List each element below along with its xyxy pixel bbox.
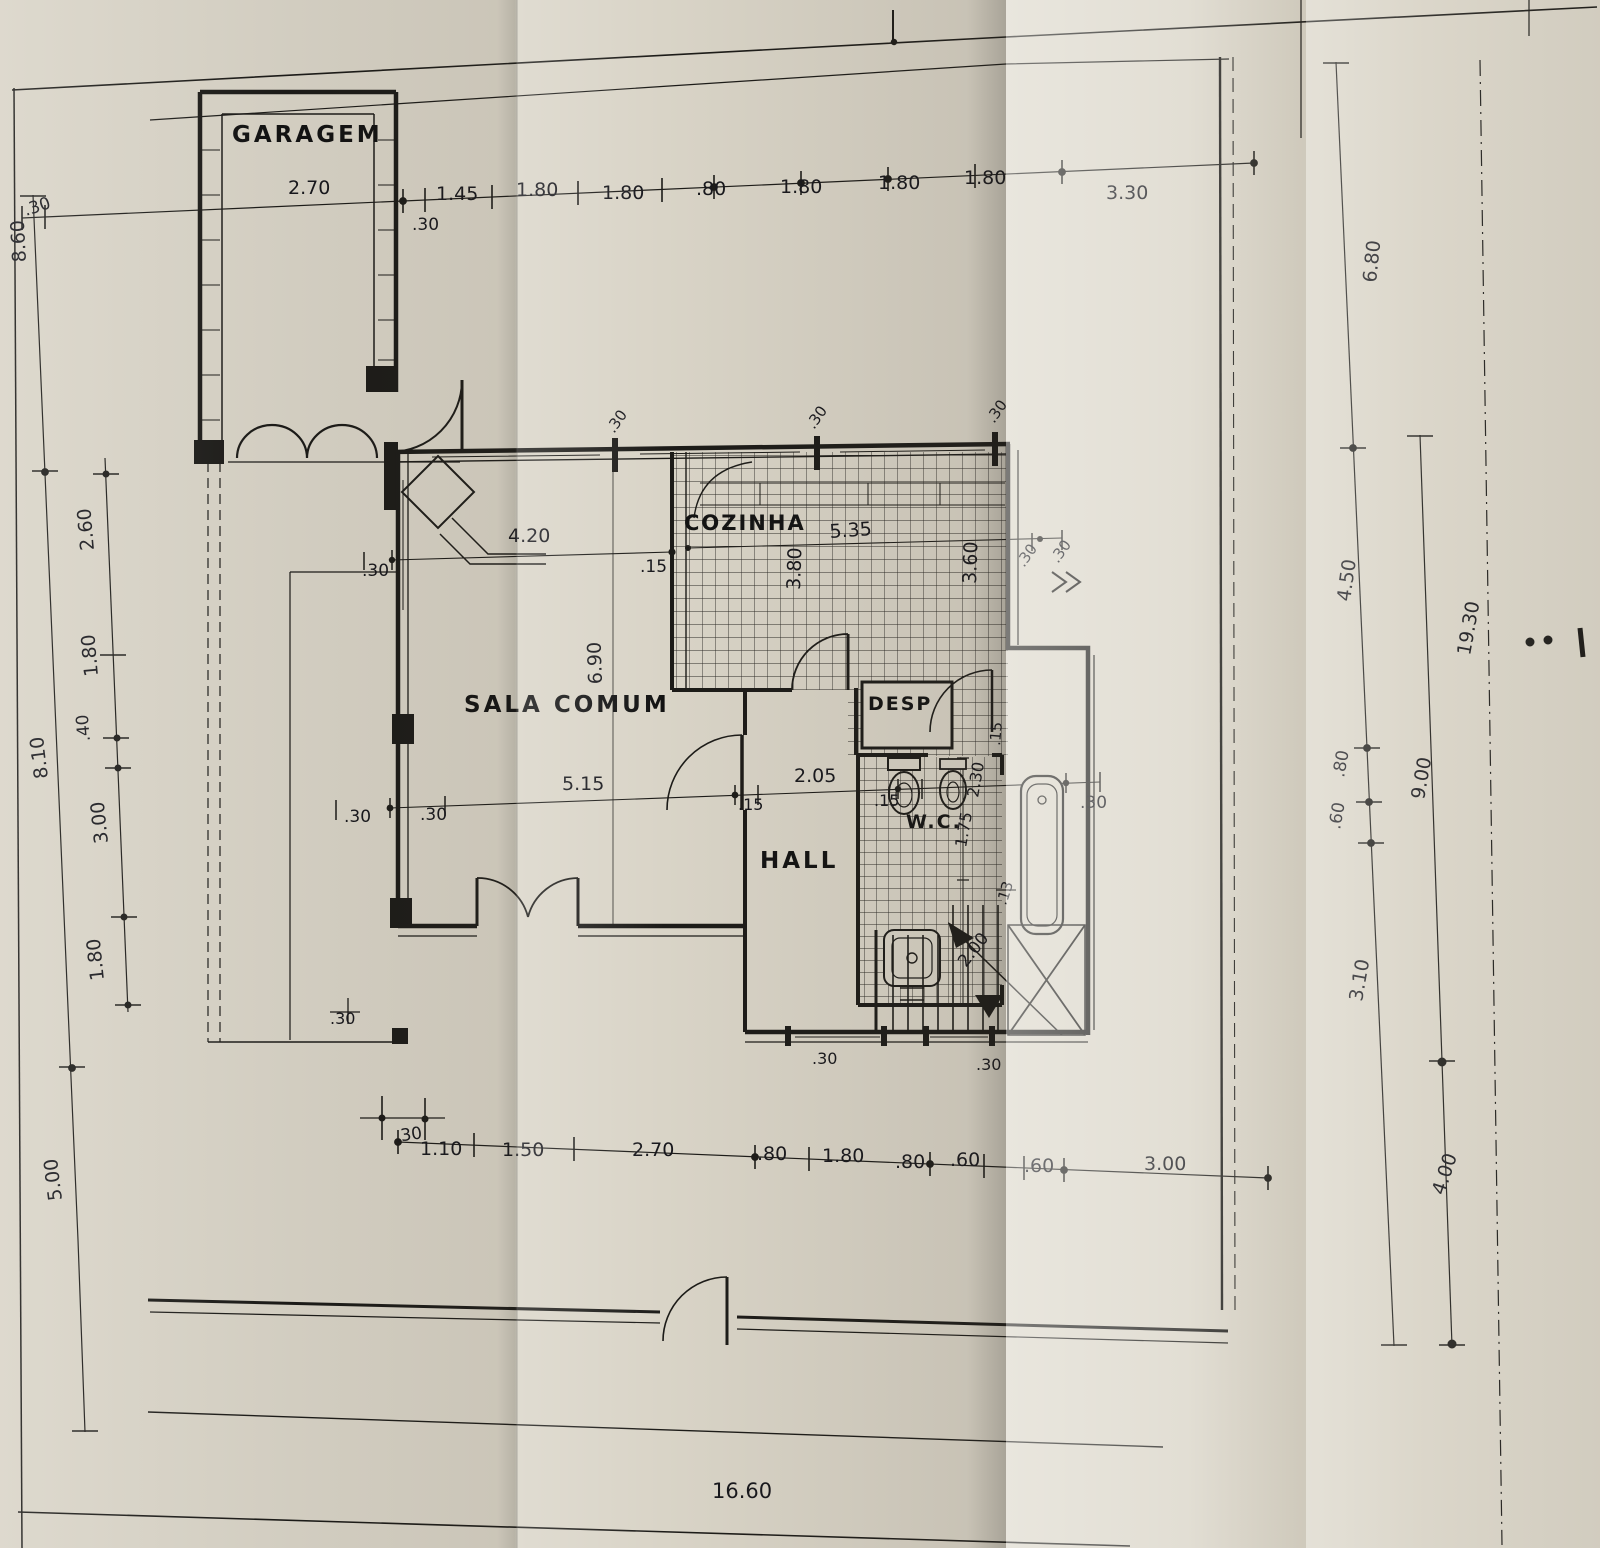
dim-label: .15 [874, 791, 899, 810]
dim-label: 1.80 [77, 633, 103, 677]
dim-label: 1.80 [964, 167, 1006, 189]
dim-label: 2.05 [794, 765, 836, 787]
stairwell-cross [1008, 925, 1085, 1035]
dimension-chains [20, 60, 1583, 1545]
dim-label: 6.90 [584, 642, 607, 685]
dim-label: .30 [1047, 536, 1075, 566]
corner-fireplace [402, 456, 546, 564]
desp-room [862, 682, 952, 748]
blueprint-paper: GARAGEM SALA COMUM COZINHA DESP W.C. HAL… [0, 0, 1600, 1548]
dim-label: .30 [976, 1055, 1001, 1074]
room-label-hall: HALL [760, 848, 838, 874]
dim-label: 3.30 [1106, 182, 1148, 204]
dim-label: 9.00 [1407, 755, 1436, 800]
dim-label: .60 [950, 1149, 980, 1171]
dim-label: .80 [895, 1151, 925, 1173]
dim-label: .80 [757, 1143, 787, 1165]
dim-label: 1.80 [602, 182, 644, 204]
dim-label: .30 [362, 561, 389, 581]
dim-label: 4.00 [1428, 1151, 1462, 1198]
dim-label: 3.60 [959, 541, 982, 584]
dim-label: 1.80 [83, 937, 109, 981]
dim-label: .30 [603, 406, 631, 436]
kitchen-tiles [672, 452, 1008, 690]
dim-label: 1.80 [780, 176, 822, 198]
dim-label: 2.60 [73, 507, 99, 551]
gate-door [663, 1277, 727, 1345]
room-label-desp: DESP [868, 693, 932, 715]
dim-label: 8.60 [7, 219, 31, 262]
dim-label: 5.15 [562, 773, 604, 795]
dim-label: .30 [330, 1009, 355, 1028]
room-label-garagem: GARAGEM [232, 122, 383, 148]
bidet-tank [940, 759, 966, 769]
dim-label: 1.80 [822, 1145, 864, 1167]
dim-label: .60 [1325, 801, 1349, 831]
dim-label: 4.50 [1333, 558, 1361, 603]
dim-label: 19.30 [1453, 599, 1484, 656]
entry-door-swing [390, 380, 462, 452]
dim-label: .30 [412, 215, 439, 235]
dim-label: .15 [738, 795, 763, 814]
dim-label: 2.70 [288, 177, 330, 199]
dim-label: 3.00 [87, 800, 113, 844]
dim-label: 1.50 [502, 1139, 544, 1161]
dim-label: 3.00 [1144, 1153, 1186, 1175]
dim-label: .30 [1080, 793, 1107, 813]
dim-label: .80 [1329, 749, 1353, 779]
dim-label: 5.35 [829, 518, 873, 543]
dim-label: .30 [344, 807, 371, 827]
dim-label: .60 [1024, 1155, 1054, 1177]
dim-label: 1.80 [516, 179, 558, 201]
dim-label: 1.80 [878, 172, 920, 194]
french-door-leaves [477, 878, 578, 926]
dim-label: .30 [420, 805, 447, 825]
labels: GARAGEM SALA COMUM COZINHA DESP W.C. HAL… [7, 122, 1485, 1503]
dim-label: 2.70 [632, 1139, 674, 1161]
room-label-sala-comum: SALA COMUM [464, 692, 670, 718]
french-door-swing [477, 878, 578, 917]
dim-label-total: 16.60 [712, 1479, 772, 1503]
dim-label: .40 [73, 714, 95, 743]
dim-label: .30 [1013, 540, 1041, 570]
dim-label: 4.20 [508, 525, 550, 547]
dim-label: 5.00 [40, 1157, 67, 1202]
dim-label: 8.10 [26, 735, 53, 780]
dim-label: 3.80 [783, 547, 806, 590]
dim-label: .30 [812, 1049, 837, 1068]
toilet-tank [888, 758, 920, 770]
dim-label: .80 [696, 178, 726, 200]
dim-label: 3.10 [1345, 957, 1374, 1002]
dim-label: 1.45 [436, 183, 478, 205]
hall-door-swing [667, 735, 742, 810]
dim-label: 6.80 [1359, 239, 1385, 283]
dim-label: 1.10 [420, 1138, 462, 1160]
dim-label: .15 [986, 721, 1006, 746]
dim-label: .30 [803, 402, 831, 432]
dim-label: .30 [983, 396, 1011, 426]
dim-label: .15 [640, 557, 667, 577]
floor-plan-drawing: GARAGEM SALA COMUM COZINHA DESP W.C. HAL… [0, 0, 1600, 1548]
room-label-cozinha: COZINHA [684, 511, 806, 535]
